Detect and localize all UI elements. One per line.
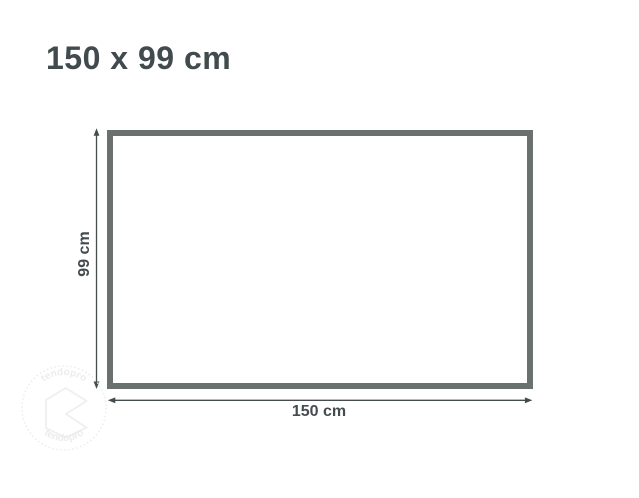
svg-text:tendopro: tendopro xyxy=(42,427,86,444)
svg-text:tendopro: tendopro xyxy=(39,367,88,384)
